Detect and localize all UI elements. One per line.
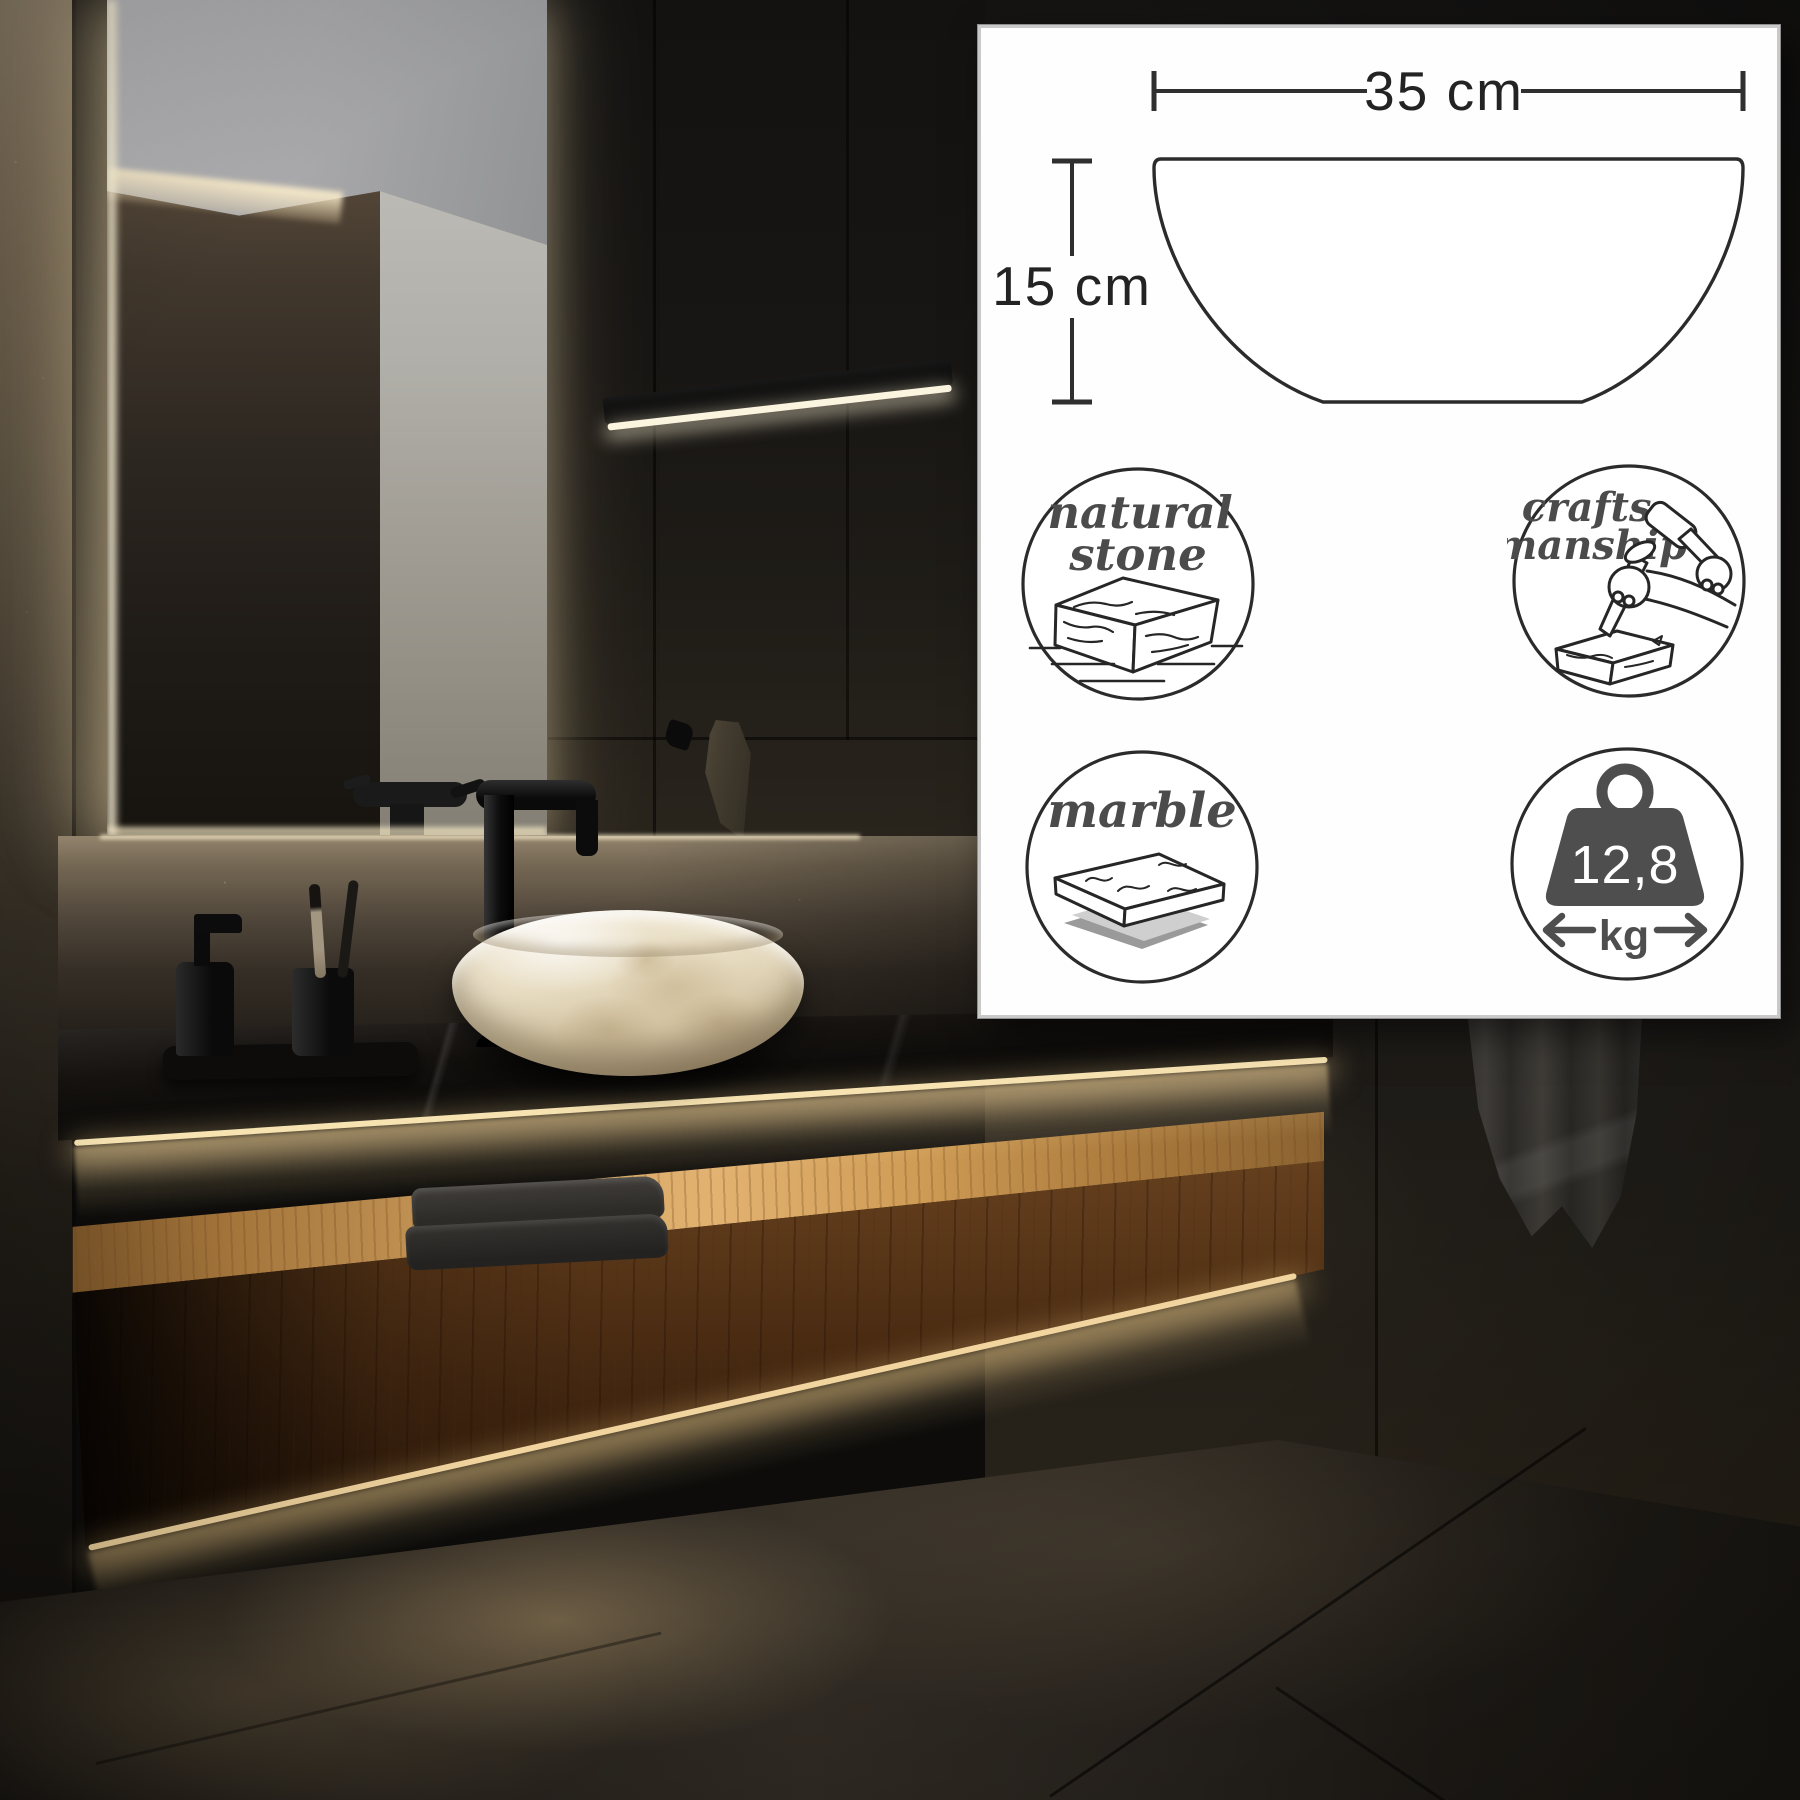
bathroom-product-photo: 35 cm 15 cm natural stone [0, 0, 1800, 1800]
marble-text: marble [1047, 783, 1237, 839]
natural-stone-text-2: stone [1068, 528, 1206, 581]
width-label: 35 cm [1364, 60, 1524, 122]
weight-badge: 12,8 kg [1505, 742, 1749, 986]
weight-value: 12,8 [1570, 835, 1679, 895]
marble-badge: marble [1020, 745, 1264, 989]
sink-dimension-diagram: 35 cm 15 cm [981, 28, 1777, 458]
natural-stone-badge: natural stone [1016, 462, 1260, 706]
sink-outline [1154, 159, 1743, 402]
weight-unit: kg [1599, 912, 1649, 960]
height-label: 15 cm [992, 255, 1152, 317]
craftsmanship-badge: crafts- manship [1507, 459, 1751, 703]
product-spec-panel: 35 cm 15 cm natural stone [978, 25, 1780, 1018]
